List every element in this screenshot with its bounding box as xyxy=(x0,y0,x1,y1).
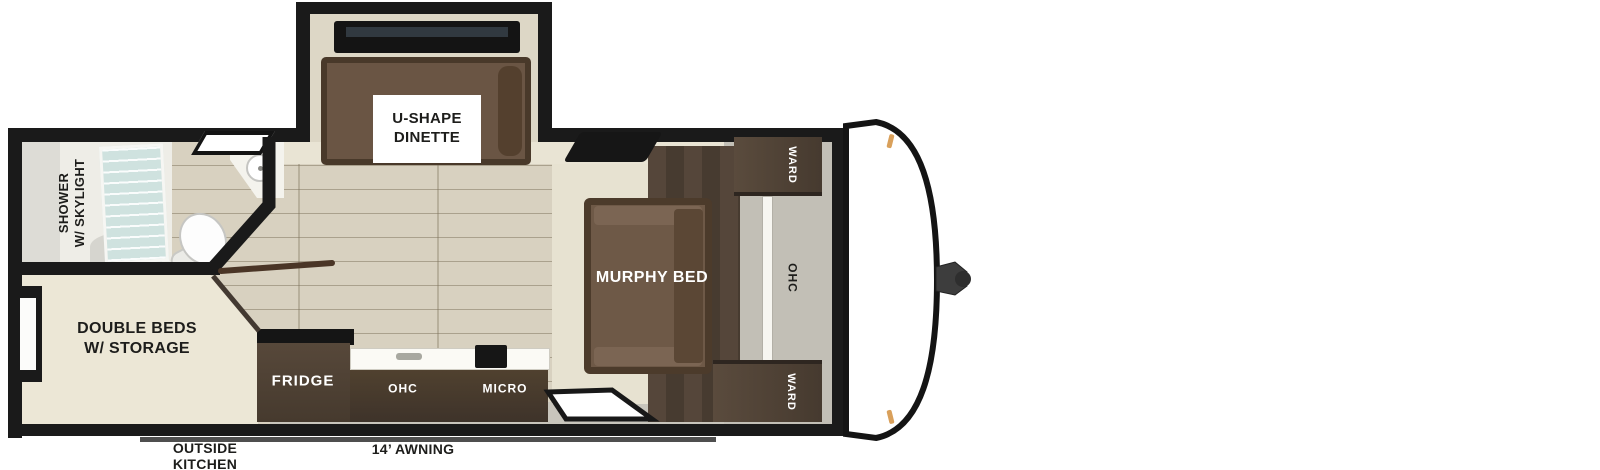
microwave xyxy=(475,345,507,368)
dinette-label-box: U-SHAPE DINETTE xyxy=(373,95,481,163)
micro-label: MICRO xyxy=(483,382,528,397)
bathroom-divider-wall xyxy=(8,262,220,275)
front-counter-edge xyxy=(762,196,773,362)
kitchen-countertop xyxy=(350,348,550,370)
clearance-light-top xyxy=(886,134,894,149)
shower-wall xyxy=(22,142,60,264)
front-cap xyxy=(846,122,937,438)
dinette-window-pane xyxy=(346,27,508,37)
double-beds-label: DOUBLE BEDS W/ STORAGE xyxy=(77,319,197,359)
shower-glass-door xyxy=(99,143,169,264)
kitchen-ohc-label: OHC xyxy=(388,382,418,397)
bathroom-window xyxy=(191,131,275,155)
wardrobe-top-label: WARD xyxy=(784,146,798,184)
dinette-back-cushion xyxy=(498,66,522,156)
wall-bottom xyxy=(8,424,846,436)
dinette-window xyxy=(334,21,520,53)
clearance-light-bottom xyxy=(886,409,894,424)
hitch-coupler xyxy=(936,262,967,295)
wall-front-bulkhead xyxy=(832,128,846,436)
fridge-label: FRIDGE xyxy=(272,373,335,392)
wardrobe-top xyxy=(734,137,822,196)
front-ohc-label: OHC xyxy=(785,263,800,293)
bedroom-window-pane xyxy=(20,298,36,370)
sink-drain xyxy=(258,166,263,171)
shower-label: SHOWER W/ SKYLIGHT xyxy=(56,159,89,248)
hitch-ball xyxy=(955,271,971,287)
kitchen-sink-faucet xyxy=(396,353,422,360)
murphy-bed-label: MURPHY BED xyxy=(562,268,742,288)
wardrobe-bottom xyxy=(713,360,822,422)
skylight-vent xyxy=(563,132,662,162)
outside-kitchen-label: OUTSIDE KITCHEN xyxy=(173,441,237,470)
awning-label: 14’ AWNING xyxy=(372,441,455,459)
floorplan-canvas: U-SHAPE DINETTE SHOWER W/ SKYLIGHT DOUBL… xyxy=(0,0,1600,470)
dinette-label: U-SHAPE DINETTE xyxy=(392,110,462,148)
wall-rear xyxy=(8,128,22,438)
wardrobe-bottom-label: WARD xyxy=(783,373,797,411)
